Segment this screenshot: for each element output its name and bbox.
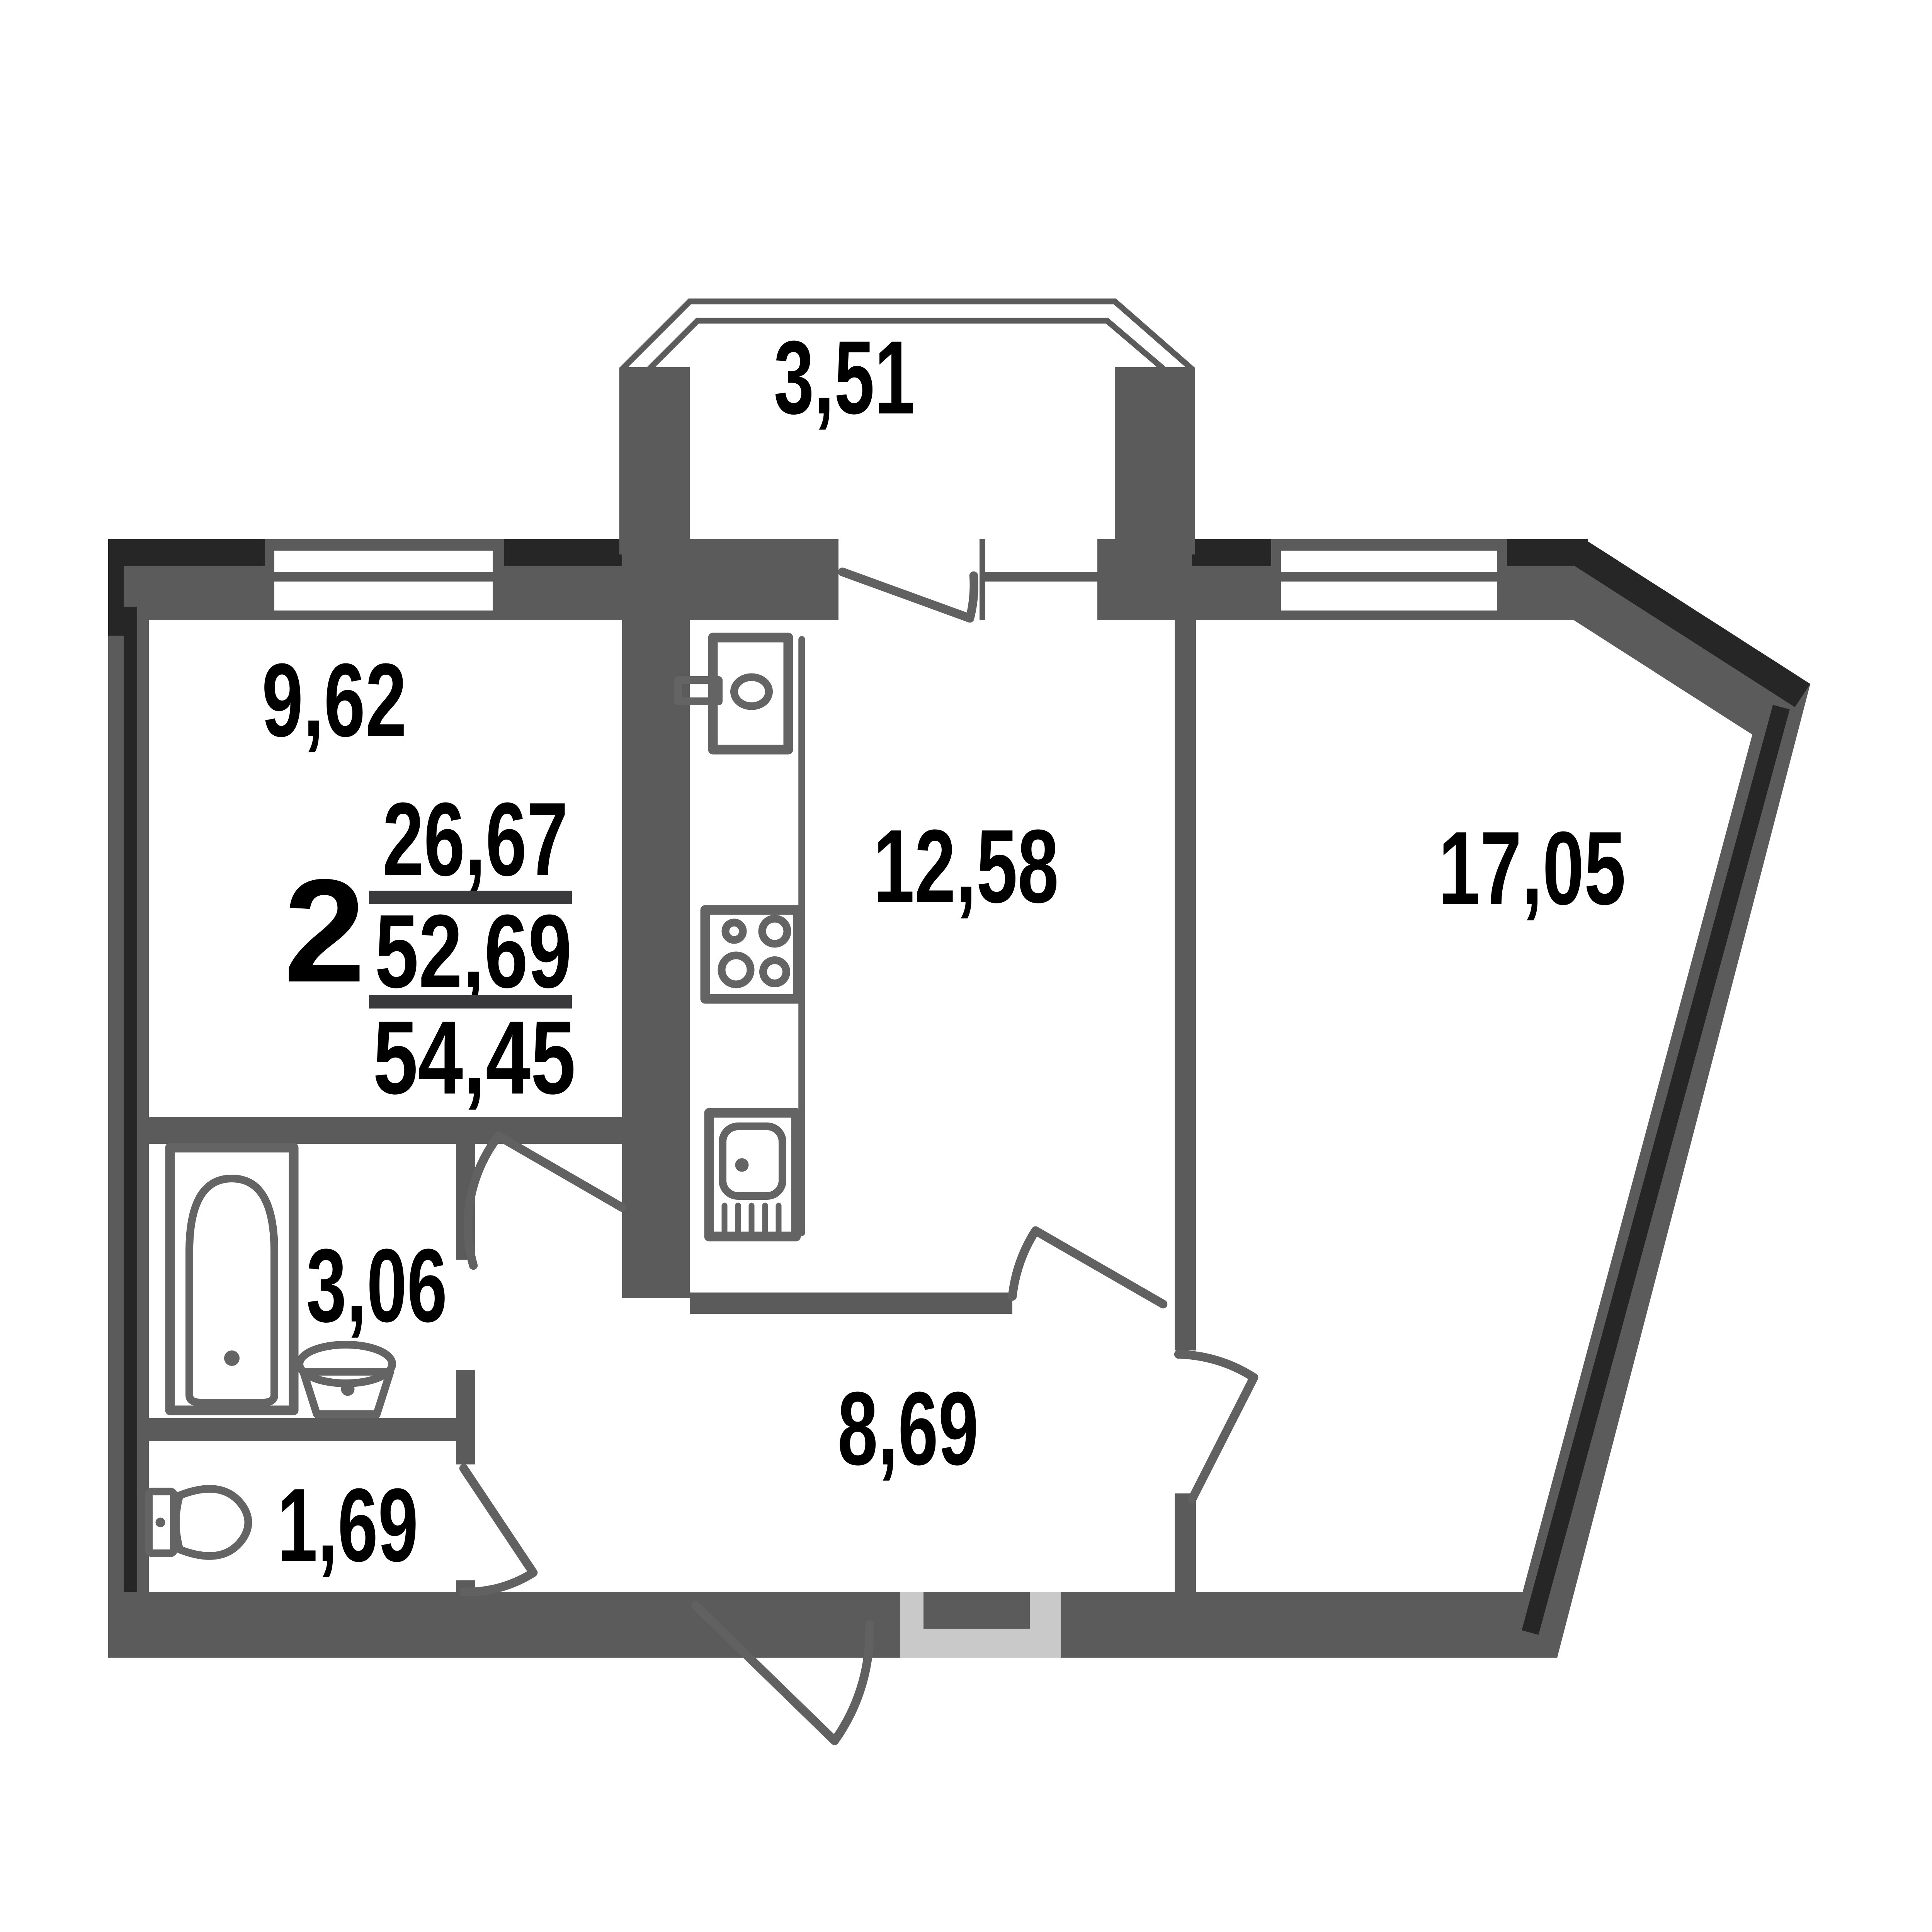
label-wc-area: 1,69 <box>277 1467 418 1583</box>
bay-wall-left <box>622 367 690 620</box>
label-balcony-area: 3,51 <box>774 320 915 436</box>
label-bathroom-area: 3,06 <box>306 1228 447 1344</box>
toilet-icon <box>176 1489 248 1556</box>
wall-bathroom-bottom <box>149 1418 475 1441</box>
stove-burner-icon <box>762 919 787 944</box>
label-living-room-area: 17,05 <box>1439 810 1626 927</box>
kitchen-sink-drain <box>735 1158 749 1172</box>
balcony-door-arc <box>970 576 974 618</box>
bay-wall-right <box>1115 367 1192 620</box>
window-right-slat2 <box>1281 582 1497 611</box>
interior-walls <box>149 620 1196 1592</box>
living-room-door-arc <box>1179 1354 1254 1378</box>
wall-outline-top-left <box>108 539 265 566</box>
kitchen-door-leaf <box>1036 1231 1163 1304</box>
stove-burner-icon <box>722 956 751 985</box>
wc-fixtures <box>149 1489 248 1556</box>
sink-bowl-icon <box>734 677 769 706</box>
floor-plan: 3,51 9,62 12,58 17,05 3,06 1,69 8,69 2 2… <box>0 0 1932 1932</box>
window-left-slat2 <box>274 582 493 611</box>
window-right-slat1 <box>1281 551 1497 572</box>
label-kitchen-area: 12,58 <box>873 808 1059 925</box>
bathtub-inner <box>189 1179 274 1403</box>
living-room-door-leaf <box>1192 1378 1254 1499</box>
wall-outline-left <box>124 607 137 1592</box>
label-hallway-area: 8,69 <box>838 1371 979 1487</box>
washbasin-bowl <box>299 1345 392 1383</box>
stove-burner-icon <box>763 960 786 983</box>
bathtub-drain <box>224 1350 240 1366</box>
stove-burner-icon <box>726 923 743 940</box>
kitchen-door-arc <box>1012 1231 1036 1296</box>
wall-bathroom-right-lower <box>456 1370 475 1418</box>
kitchen-fixtures <box>678 638 802 1238</box>
sink-cabinet-icon <box>713 638 788 750</box>
washbasin-drain <box>341 1383 355 1396</box>
summary-block: 2 26,67 52,69 54,45 <box>284 781 576 1116</box>
bay-floor-mullion <box>980 539 985 620</box>
kitchen-sink-basin <box>723 1126 782 1196</box>
wall-outline-top-mid <box>504 539 622 566</box>
label-room-area: 9,62 <box>262 642 407 759</box>
bathroom-door-leaf <box>498 1136 622 1207</box>
wall-wc-right-upper <box>456 1441 475 1464</box>
wall-kitchen-right <box>1175 620 1196 1350</box>
entrance-niche-notch <box>923 1592 1030 1629</box>
wc-door-leaf <box>464 1468 533 1573</box>
window-left-slat1 <box>274 551 493 572</box>
toilet-tank-button <box>156 1518 165 1527</box>
wall-outline-left-corner <box>108 539 124 636</box>
wall-bottom <box>108 1592 1557 1658</box>
bay-window-divider <box>985 572 1097 582</box>
wall-bathroom-top <box>149 1117 622 1144</box>
wall-outline-top-right-a <box>1192 539 1271 566</box>
bay-floor-wall-right <box>1097 539 1115 620</box>
label-total-area: 54,45 <box>373 1000 576 1116</box>
wall-kitchen-right-stub <box>1175 1493 1196 1592</box>
entrance-niche <box>900 1592 1061 1658</box>
label-living-area: 26,67 <box>383 781 568 898</box>
doors <box>464 572 1254 1741</box>
bay-floor-wall-left <box>690 539 838 620</box>
wall-kitchen-bottom <box>690 1293 1012 1314</box>
label-apartment-area: 52,69 <box>375 893 572 1010</box>
wall-kitchen-left <box>622 620 690 1298</box>
label-rooms-count: 2 <box>284 849 365 1013</box>
balcony-door-leaf <box>842 572 970 618</box>
